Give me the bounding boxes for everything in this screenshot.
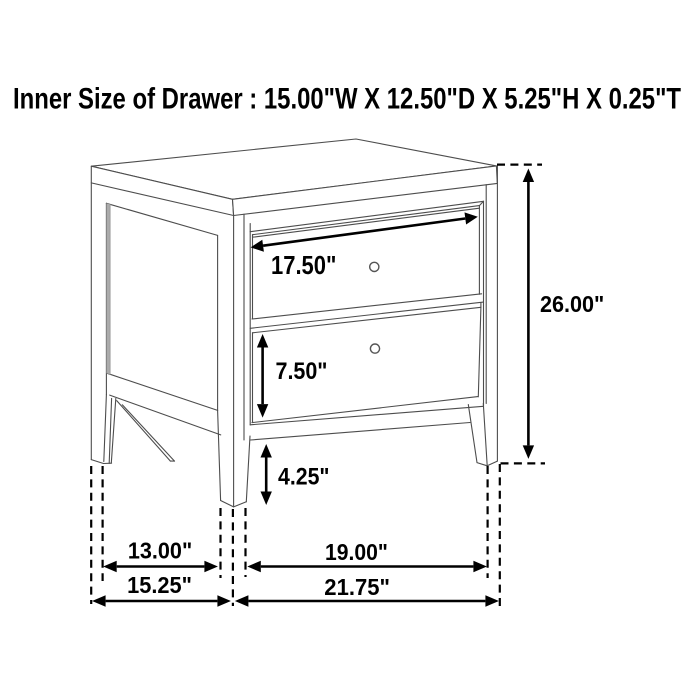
svg-text:26.00": 26.00" bbox=[540, 291, 604, 317]
svg-text:4.25": 4.25" bbox=[278, 464, 330, 491]
svg-text:Inner Size of Drawer : 15.00"W: Inner Size of Drawer : 15.00"W X 12.50"D… bbox=[13, 83, 681, 116]
svg-text:7.50": 7.50" bbox=[276, 358, 328, 385]
svg-text:19.00": 19.00" bbox=[325, 539, 388, 565]
svg-text:17.50": 17.50" bbox=[271, 250, 336, 280]
svg-text:21.75": 21.75" bbox=[324, 574, 390, 600]
svg-text:13.00": 13.00" bbox=[128, 538, 192, 564]
svg-text:15.25": 15.25" bbox=[127, 572, 192, 598]
